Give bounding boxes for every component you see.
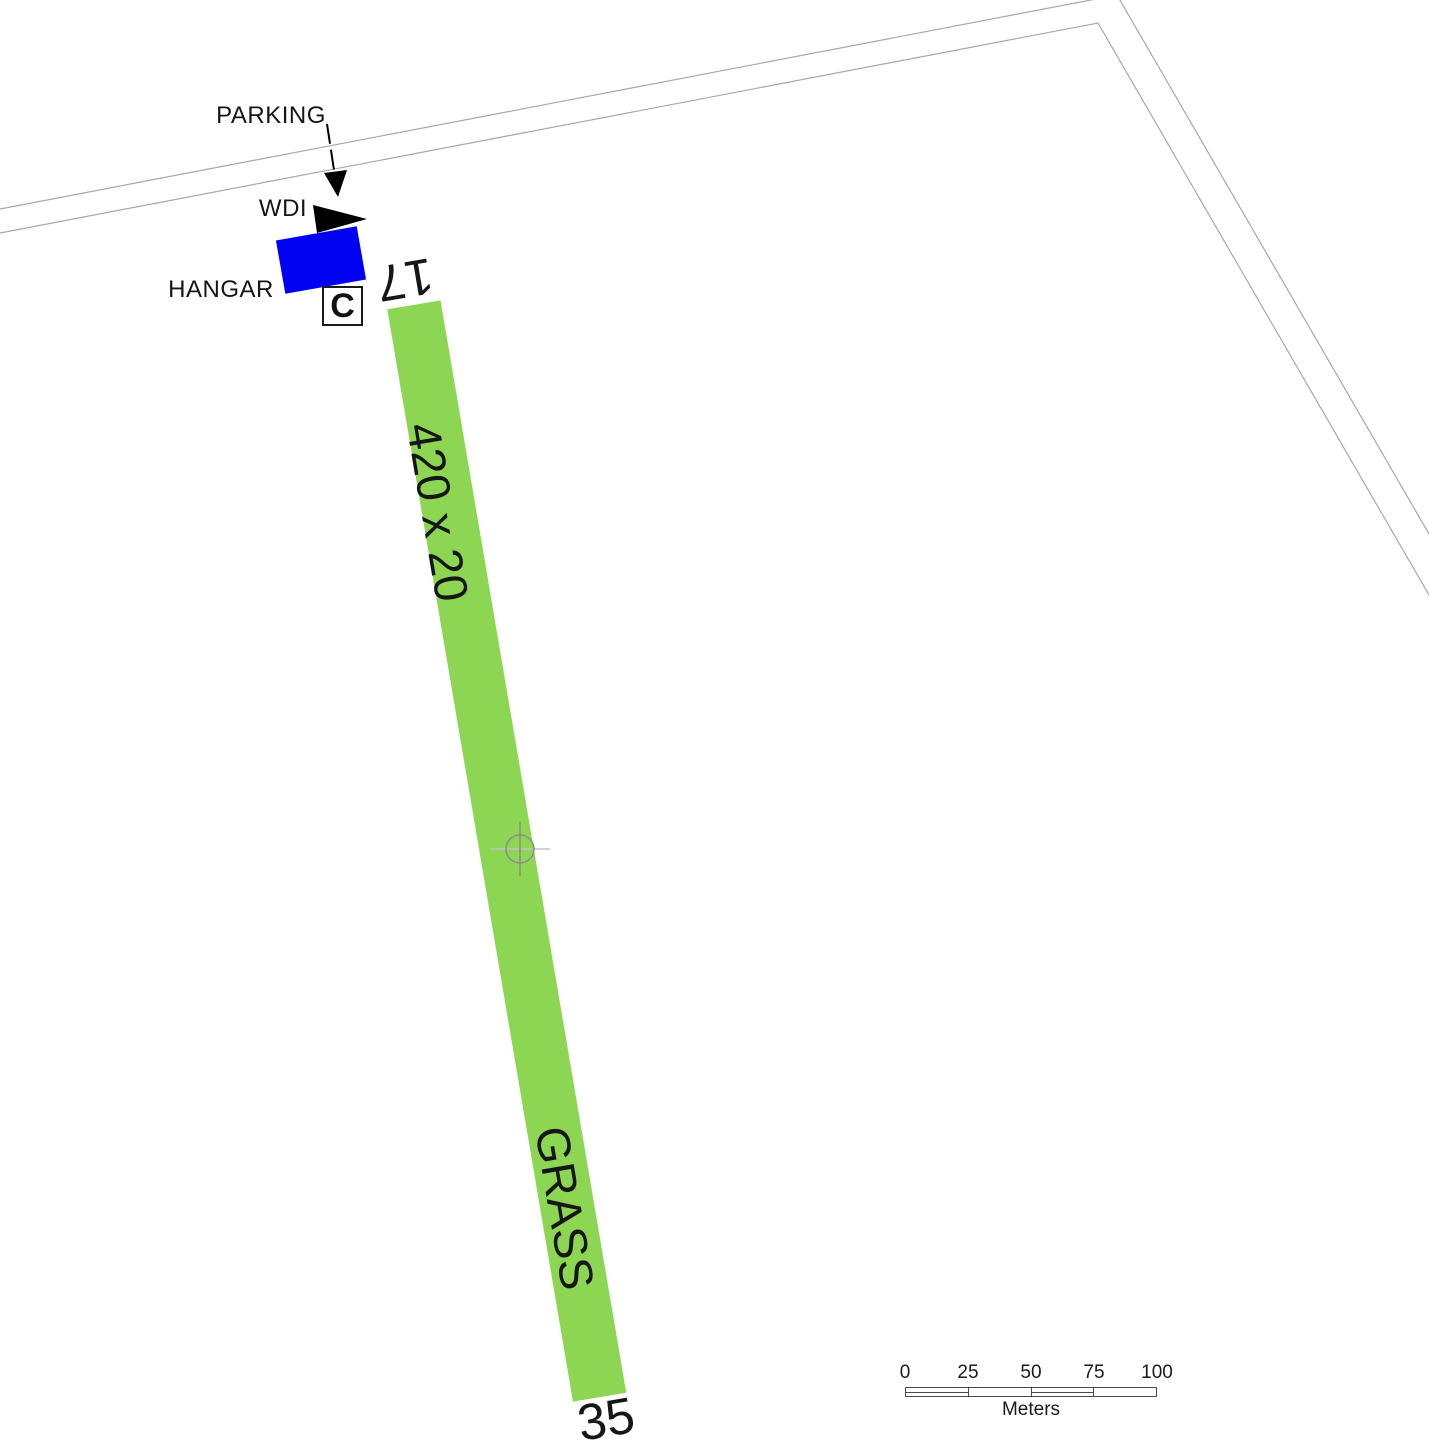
scale-segment [1031, 1388, 1094, 1396]
circuit-marker-letter: C [330, 287, 355, 326]
scale-tick-0: 0 [900, 1362, 911, 1384]
scale-segment [968, 1388, 1031, 1396]
scale-unit-label: Meters [1002, 1399, 1060, 1421]
parking-arrow-shaft [327, 124, 334, 170]
runway-designator-35: 35 [573, 1385, 639, 1445]
wind-direction-indicator-icon [313, 205, 367, 233]
airfield-diagram: PARKING WDI HANGAR 17 35 420 x 20 GRASS … [0, 0, 1429, 1445]
scale-strip [905, 1387, 1157, 1397]
parking-arrow-icon [324, 124, 347, 197]
scale-segment [906, 1388, 968, 1396]
scale-tick-50: 50 [1020, 1362, 1041, 1384]
hangar-building [276, 226, 366, 293]
boundary-line-outer [0, 0, 1429, 534]
wdi-label: WDI [259, 195, 307, 223]
hangar-label: HANGAR [168, 276, 274, 304]
parking-arrow-head [324, 170, 347, 197]
scale-tick-75: 75 [1083, 1362, 1104, 1384]
scale-tick-100: 100 [1141, 1362, 1173, 1384]
circuit-marker-box: C [322, 286, 363, 326]
diagram-vector-layer [0, 0, 1429, 1445]
parking-label: PARKING [216, 102, 326, 130]
scale-tick-25: 25 [957, 1362, 978, 1384]
scale-bar: 0 25 50 75 100 Meters [905, 1362, 1157, 1418]
boundary-line-inner [0, 23, 1429, 595]
scale-segment [1093, 1388, 1156, 1396]
runway-designator-17: 17 [372, 246, 438, 314]
